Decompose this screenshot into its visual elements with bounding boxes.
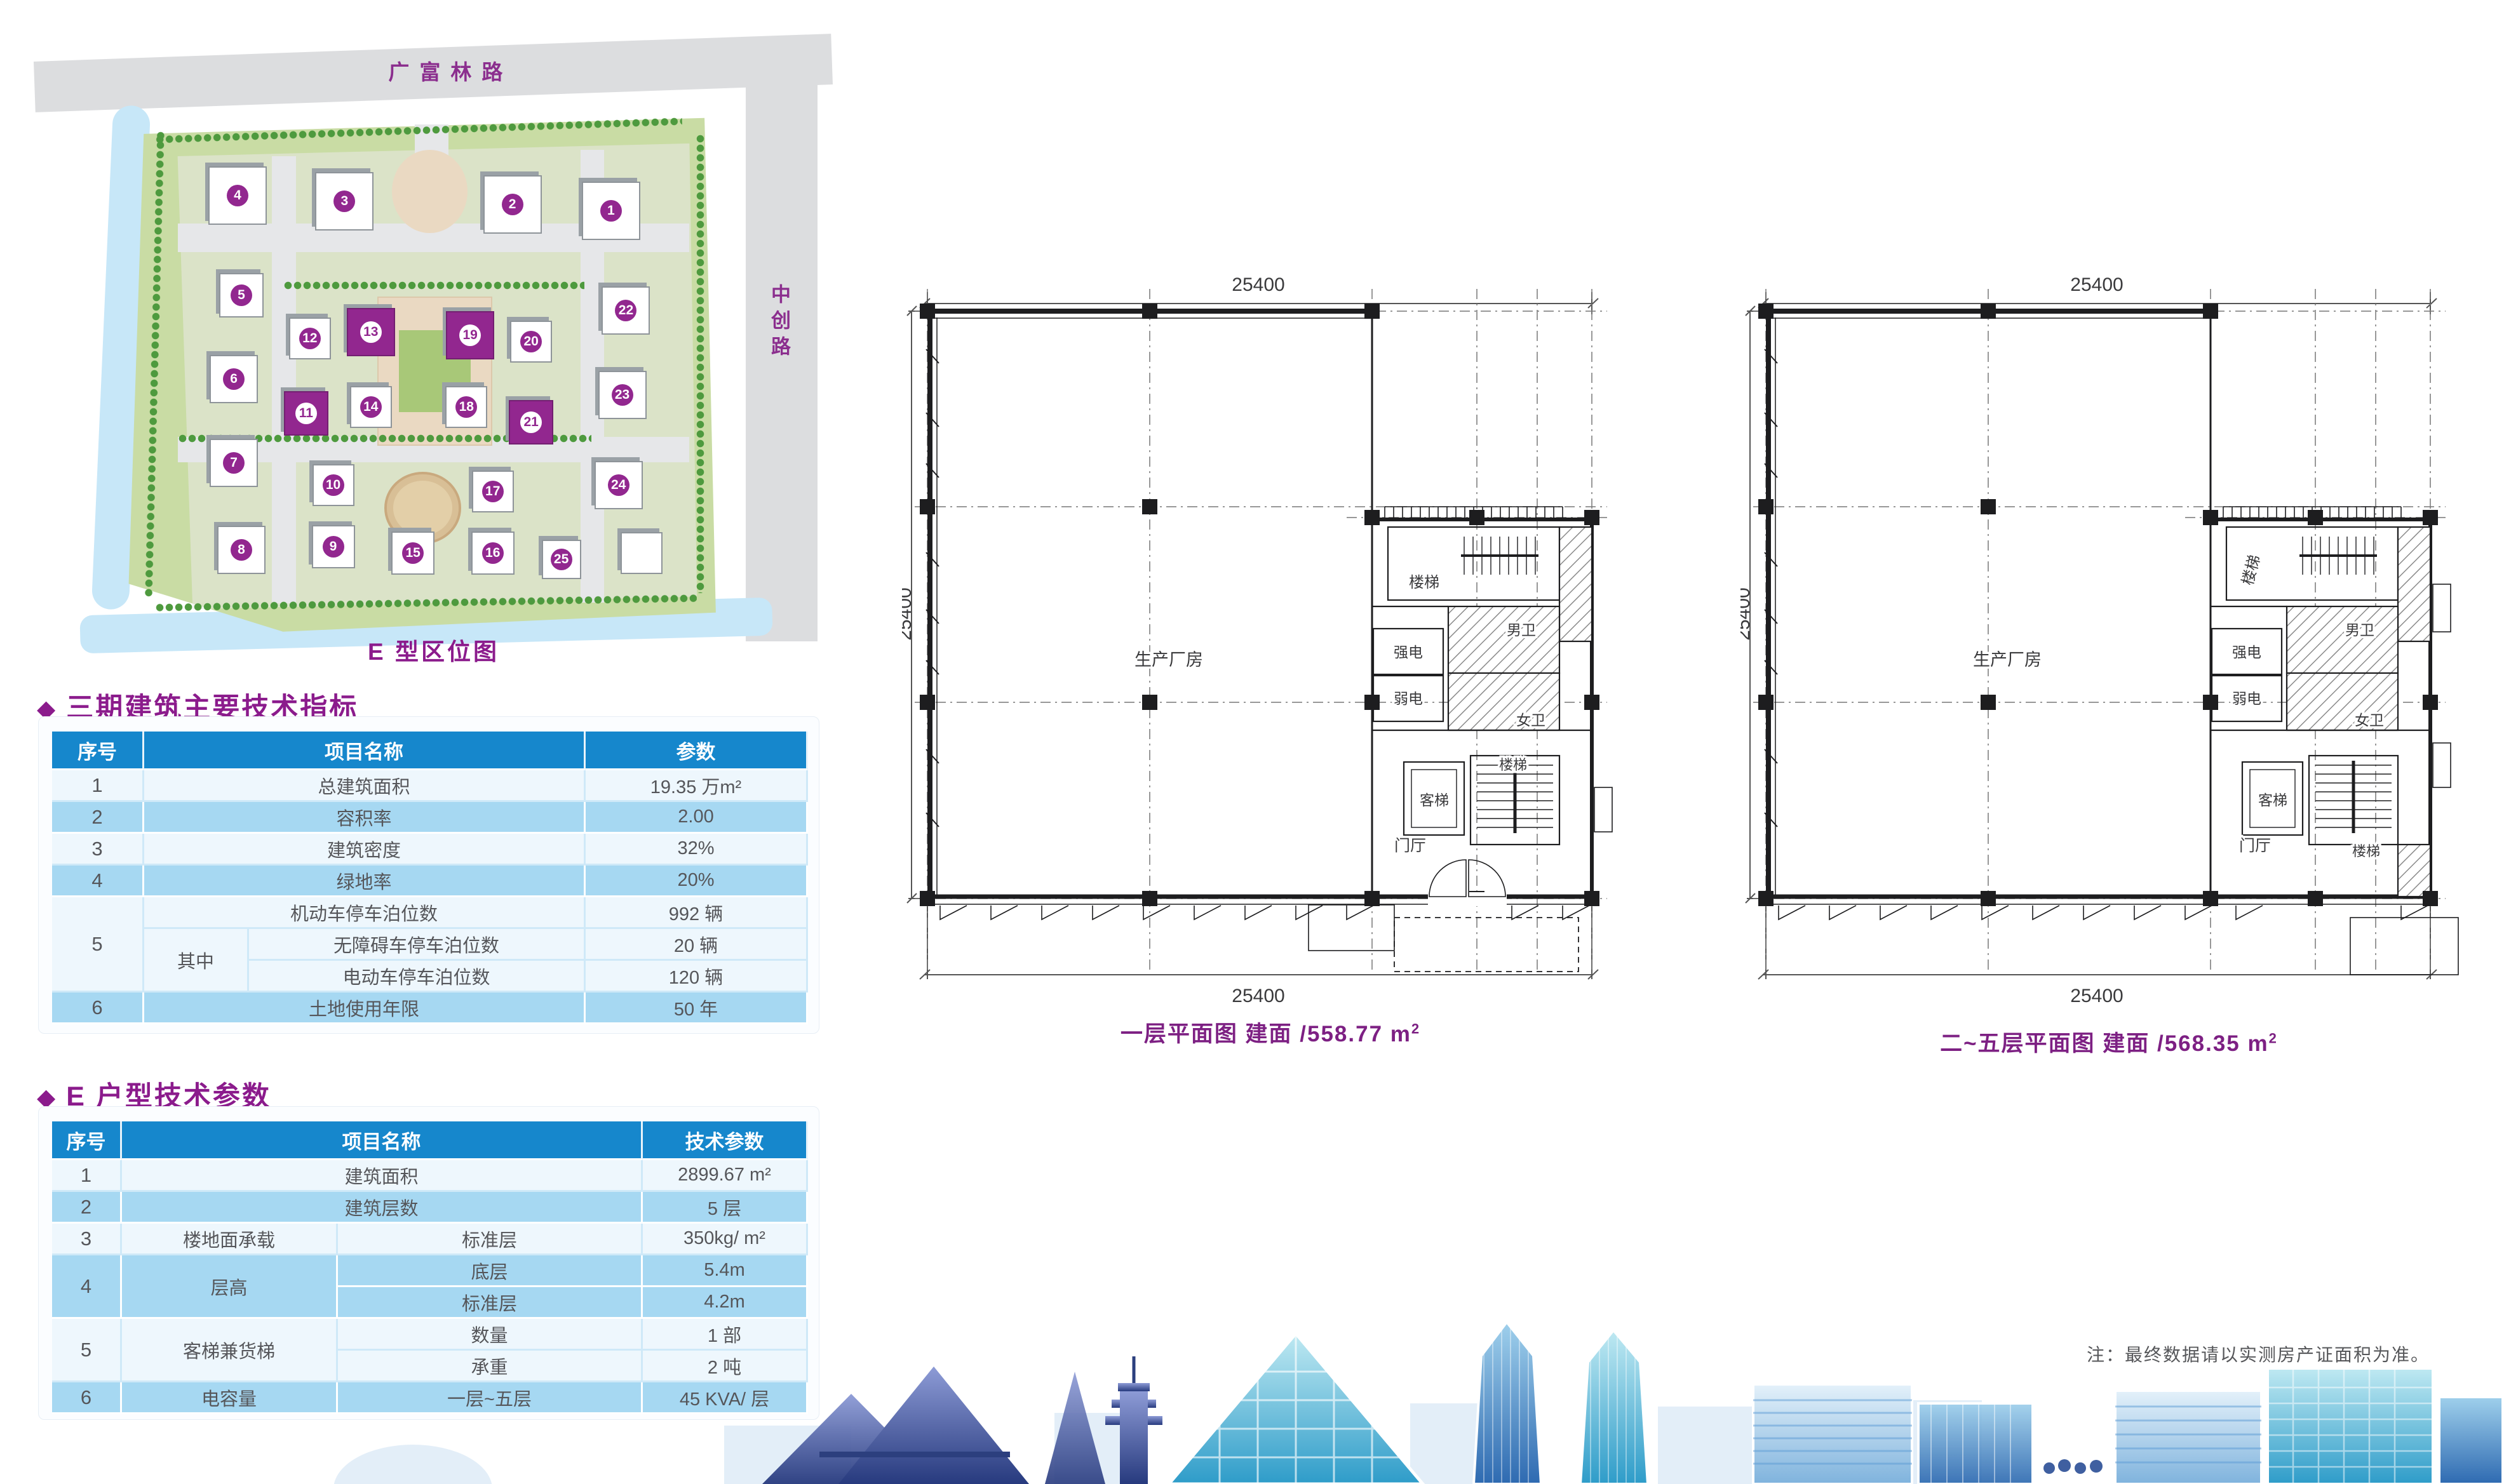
room-stair-top: 楼梯 [1409, 574, 1439, 591]
twin-towers [1474, 1321, 1648, 1484]
building-number-badge: 11 [295, 403, 317, 424]
room-weak-elec: 弱电 [1394, 690, 1423, 707]
map-building-19: 19 [446, 311, 494, 359]
building-number-badge: 6 [223, 368, 245, 390]
building-number-badge: 9 [323, 536, 344, 558]
cell: 其中 [144, 929, 249, 993]
map-building-17: 17 [472, 471, 514, 512]
room-stair-top: 楼梯 [2239, 553, 2264, 587]
cell: 3 [52, 1224, 122, 1255]
cell: 建筑层数 [122, 1192, 643, 1224]
cell: 6 [52, 993, 144, 1024]
building-number-badge: 2 [502, 194, 523, 215]
map-building-5: 5 [219, 273, 264, 318]
building-number-badge: 25 [551, 549, 572, 570]
building-number-badge: 5 [231, 284, 252, 306]
cell: 容积率 [144, 802, 586, 834]
trees [2043, 1459, 2103, 1474]
table-row: 5 机动车停车泊位数 992 辆 [52, 897, 808, 929]
cell: 建筑面积 [122, 1160, 643, 1192]
map-building-11: 11 [284, 391, 328, 436]
map-building-25: 25 [542, 540, 581, 579]
cell: 350kg/ m² [643, 1224, 808, 1255]
cell: 5 层 [643, 1192, 808, 1224]
building-number-badge: 23 [612, 384, 633, 406]
map-building-1: 1 [582, 182, 640, 240]
building-number-badge: 19 [459, 324, 481, 346]
room-workshop: 生产厂房 [1134, 650, 1203, 669]
room-mens-wc: 男卫 [2345, 622, 2374, 638]
cell: 总建筑面积 [144, 770, 586, 802]
cell: 4 [52, 866, 144, 897]
table-row: 4 绿地率 20% [52, 866, 808, 897]
col-name: 项目名称 [144, 732, 586, 770]
map-building-13: 13 [347, 308, 395, 356]
cell: 992 辆 [586, 897, 808, 929]
building-number-badge: 3 [333, 191, 355, 212]
table-row: 2 建筑层数 5 层 [52, 1192, 808, 1224]
cell: 1 [52, 770, 144, 802]
cell: 2899.67 m² [643, 1160, 808, 1192]
cell: 32% [586, 834, 808, 866]
room-womens-wc: 女卫 [1516, 712, 1545, 728]
dim-top: 25400 [2070, 274, 2123, 295]
entrance [1309, 787, 1612, 972]
cell: 建筑密度 [144, 834, 586, 866]
cell: 3 [52, 834, 144, 866]
room-strong-elec: 强电 [1394, 644, 1423, 660]
cell: 2 [52, 802, 144, 834]
map-building-21: 21 [509, 400, 553, 445]
table-row: 3 建筑密度 32% [52, 834, 808, 866]
table-row: 1 总建筑面积 19.35 万m² [52, 770, 808, 802]
cell: 20% [586, 866, 808, 897]
col-param: 参数 [586, 732, 808, 770]
room-mens-wc: 男卫 [1507, 622, 1536, 638]
floor-plan-2: 25400 25400 25400 [1740, 254, 2477, 1010]
cell: 6 [52, 1382, 122, 1414]
cell: 底层 [338, 1255, 643, 1287]
cell: 2.00 [586, 802, 808, 834]
building-number-badge: 20 [520, 331, 542, 352]
table-row: 6 土地使用年限 50 年 [52, 993, 808, 1024]
building-number-badge: 17 [482, 481, 504, 502]
building-number-badge: 10 [323, 474, 344, 496]
map-building-22: 22 [602, 286, 650, 335]
room-strong-elec: 强电 [2232, 644, 2261, 660]
dim-bottom: 25400 [1232, 986, 1284, 1006]
map-building-3: 3 [315, 172, 374, 231]
map-building-24: 24 [595, 461, 643, 509]
table-row: 1 建筑面积 2899.67 m² [52, 1160, 808, 1192]
building-number-badge: 4 [227, 185, 248, 206]
building-number-badge: 7 [223, 452, 245, 474]
building-number-badge: 14 [360, 396, 382, 418]
building-number-badge: 8 [231, 539, 252, 561]
disclaimer-note: 注：最终数据请以实测房产证面积为准。 [2087, 1341, 2430, 1367]
col-param: 技术参数 [643, 1121, 808, 1160]
table-header-row: 序号 项目名称 参数 [52, 732, 808, 770]
site-map: 4321522121319206231114182171017248915162… [57, 29, 810, 667]
building-number-badge: 15 [402, 542, 424, 564]
road-label-zhongchuang: 中创路 [765, 284, 793, 362]
room-lobby: 门厅 [2239, 837, 2271, 855]
buildings-layer: 4321522121319206231114182171017248915162… [57, 29, 810, 667]
brochure-page: 4321522121319206231114182171017248915162… [0, 0, 2504, 1484]
building-number-badge: 22 [615, 300, 636, 321]
building-number-badge: 24 [608, 474, 629, 496]
map-caption: E 型区位图 [57, 632, 810, 667]
building-number-badge: 1 [600, 200, 622, 222]
building-number-badge: 13 [360, 321, 382, 343]
cell: 客梯兼货梯 [122, 1319, 338, 1382]
cell: 2 [52, 1192, 122, 1224]
road-label-guangfulin: 广富林路 [388, 55, 513, 86]
map-building-16: 16 [471, 531, 515, 575]
map-building-2: 2 [483, 175, 542, 234]
map-building-12: 12 [289, 318, 331, 359]
table-row: 2 容积率 2.00 [52, 802, 808, 834]
room-stair-bottom: 楼梯 [1499, 757, 1527, 773]
columns [920, 304, 1599, 906]
cell: 绿地率 [144, 866, 586, 897]
glass-pyramid [1169, 1334, 1423, 1484]
cell: 1 [52, 1160, 122, 1192]
map-building-10: 10 [313, 464, 354, 506]
dim-left: 25400 [902, 587, 915, 640]
map-building-6: 6 [210, 355, 258, 403]
chinese-roofs [762, 1367, 1105, 1484]
cell: 电容量 [122, 1382, 338, 1414]
map-building-7: 7 [210, 439, 258, 487]
cell: 层高 [122, 1255, 338, 1319]
building-number-badge: 16 [482, 542, 504, 564]
cell: 50 年 [586, 993, 808, 1024]
room-womens-wc: 女卫 [2355, 712, 2384, 728]
floor-plan-1: 25400 25400 25400 [902, 254, 1639, 1010]
cell: 19.35 万m² [586, 770, 808, 802]
map-building-18: 18 [445, 386, 487, 428]
room-stair-bottom: 楼梯 [2352, 843, 2380, 859]
columns [1758, 304, 2438, 906]
skyline-illustration [330, 1295, 2504, 1484]
cell: 5 [52, 1319, 122, 1382]
cell: 楼地面承载 [122, 1224, 338, 1255]
room-lobby: 门厅 [1394, 837, 1426, 855]
office-blocks [1753, 1368, 2503, 1484]
map-building-4: 4 [208, 166, 267, 225]
table-row: 其中 无障碍车停车泊位数 20 辆 [52, 929, 808, 961]
cell: 20 辆 [586, 929, 808, 961]
building-number-badge: 12 [299, 328, 321, 349]
col-name: 项目名称 [122, 1121, 643, 1160]
room-lift: 客梯 [2258, 792, 2287, 808]
cell: 电动车停车泊位数 [249, 961, 586, 993]
cell: 4 [52, 1255, 122, 1319]
map-building-15: 15 [391, 531, 434, 575]
col-no: 序号 [52, 1121, 122, 1160]
map-building-14: 14 [350, 386, 392, 428]
sill-teeth [940, 906, 1589, 919]
dim-left: 25400 [1740, 587, 1754, 640]
cell: 机动车停车泊位数 [144, 897, 586, 929]
cell: 5.4m [643, 1255, 808, 1287]
room-workshop: 生产厂房 [1973, 650, 2042, 669]
map-building-9: 9 [312, 525, 355, 568]
map-building-23: 23 [598, 371, 647, 419]
table-phase3: 序号 项目名称 参数 1 总建筑面积 19.35 万m² 2 容积率 2.00 … [52, 732, 808, 1024]
cell: 120 辆 [586, 961, 808, 993]
dim-bottom: 25400 [2070, 986, 2123, 1006]
table-row: 4 层高 底层 5.4m [52, 1255, 808, 1287]
dim-top: 25400 [1232, 274, 1284, 295]
building-number-badge: 21 [520, 411, 542, 433]
cell: 5 [52, 897, 144, 993]
plan2-caption: 二~五层平面图 建面 /568.35 m2 [1740, 1026, 2477, 1058]
plan1-caption: 一层平面图 建面 /558.77 m2 [902, 1016, 1639, 1048]
map-building-20: 20 [510, 321, 552, 363]
cell: 标准层 [338, 1224, 643, 1255]
sill-teeth [1779, 906, 2428, 919]
cell: 无障碍车停车泊位数 [249, 929, 586, 961]
col-no: 序号 [52, 732, 144, 770]
table-row: 3 楼地面承载 标准层 350kg/ m² [52, 1224, 808, 1255]
table-header-row: 序号 项目名称 技术参数 [52, 1121, 808, 1160]
map-building [621, 532, 663, 574]
room-weak-elec: 弱电 [2232, 690, 2261, 707]
building-number-badge: 18 [455, 396, 477, 418]
map-building-8: 8 [217, 526, 266, 574]
room-lift: 客梯 [1420, 792, 1449, 808]
cell: 土地使用年限 [144, 993, 586, 1024]
